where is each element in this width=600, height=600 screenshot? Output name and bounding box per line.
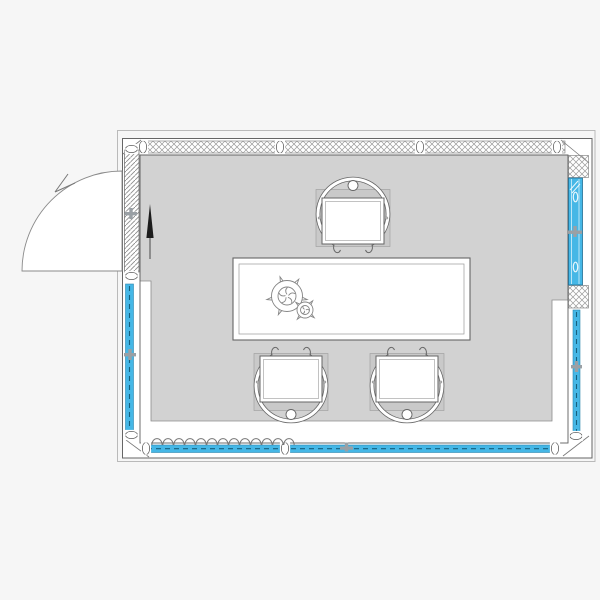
wall-post xyxy=(569,156,589,178)
door-swing-arc xyxy=(22,171,122,271)
chair-south-right xyxy=(370,347,444,421)
wall-joint-icon xyxy=(569,431,583,441)
wall-post xyxy=(569,286,589,309)
wall-joint-icon xyxy=(141,442,151,456)
wall-joint-icon xyxy=(550,442,560,456)
wall-joint-icon xyxy=(138,140,148,154)
wall-joint-icon xyxy=(280,442,290,456)
floor-plan-drawing xyxy=(0,0,600,600)
door-jamb-icon xyxy=(125,271,139,281)
top-wall xyxy=(138,140,565,154)
chair-south-left xyxy=(254,347,328,421)
chair-north xyxy=(316,179,390,253)
wall-joint-icon xyxy=(125,430,139,440)
wall-joint-icon xyxy=(552,140,562,154)
door-swing xyxy=(22,171,122,271)
door-jamb-icon xyxy=(125,144,139,154)
wall-joint-icon xyxy=(415,140,425,154)
floor-plan-canvas xyxy=(0,0,600,600)
wall-joint-icon xyxy=(275,140,285,154)
